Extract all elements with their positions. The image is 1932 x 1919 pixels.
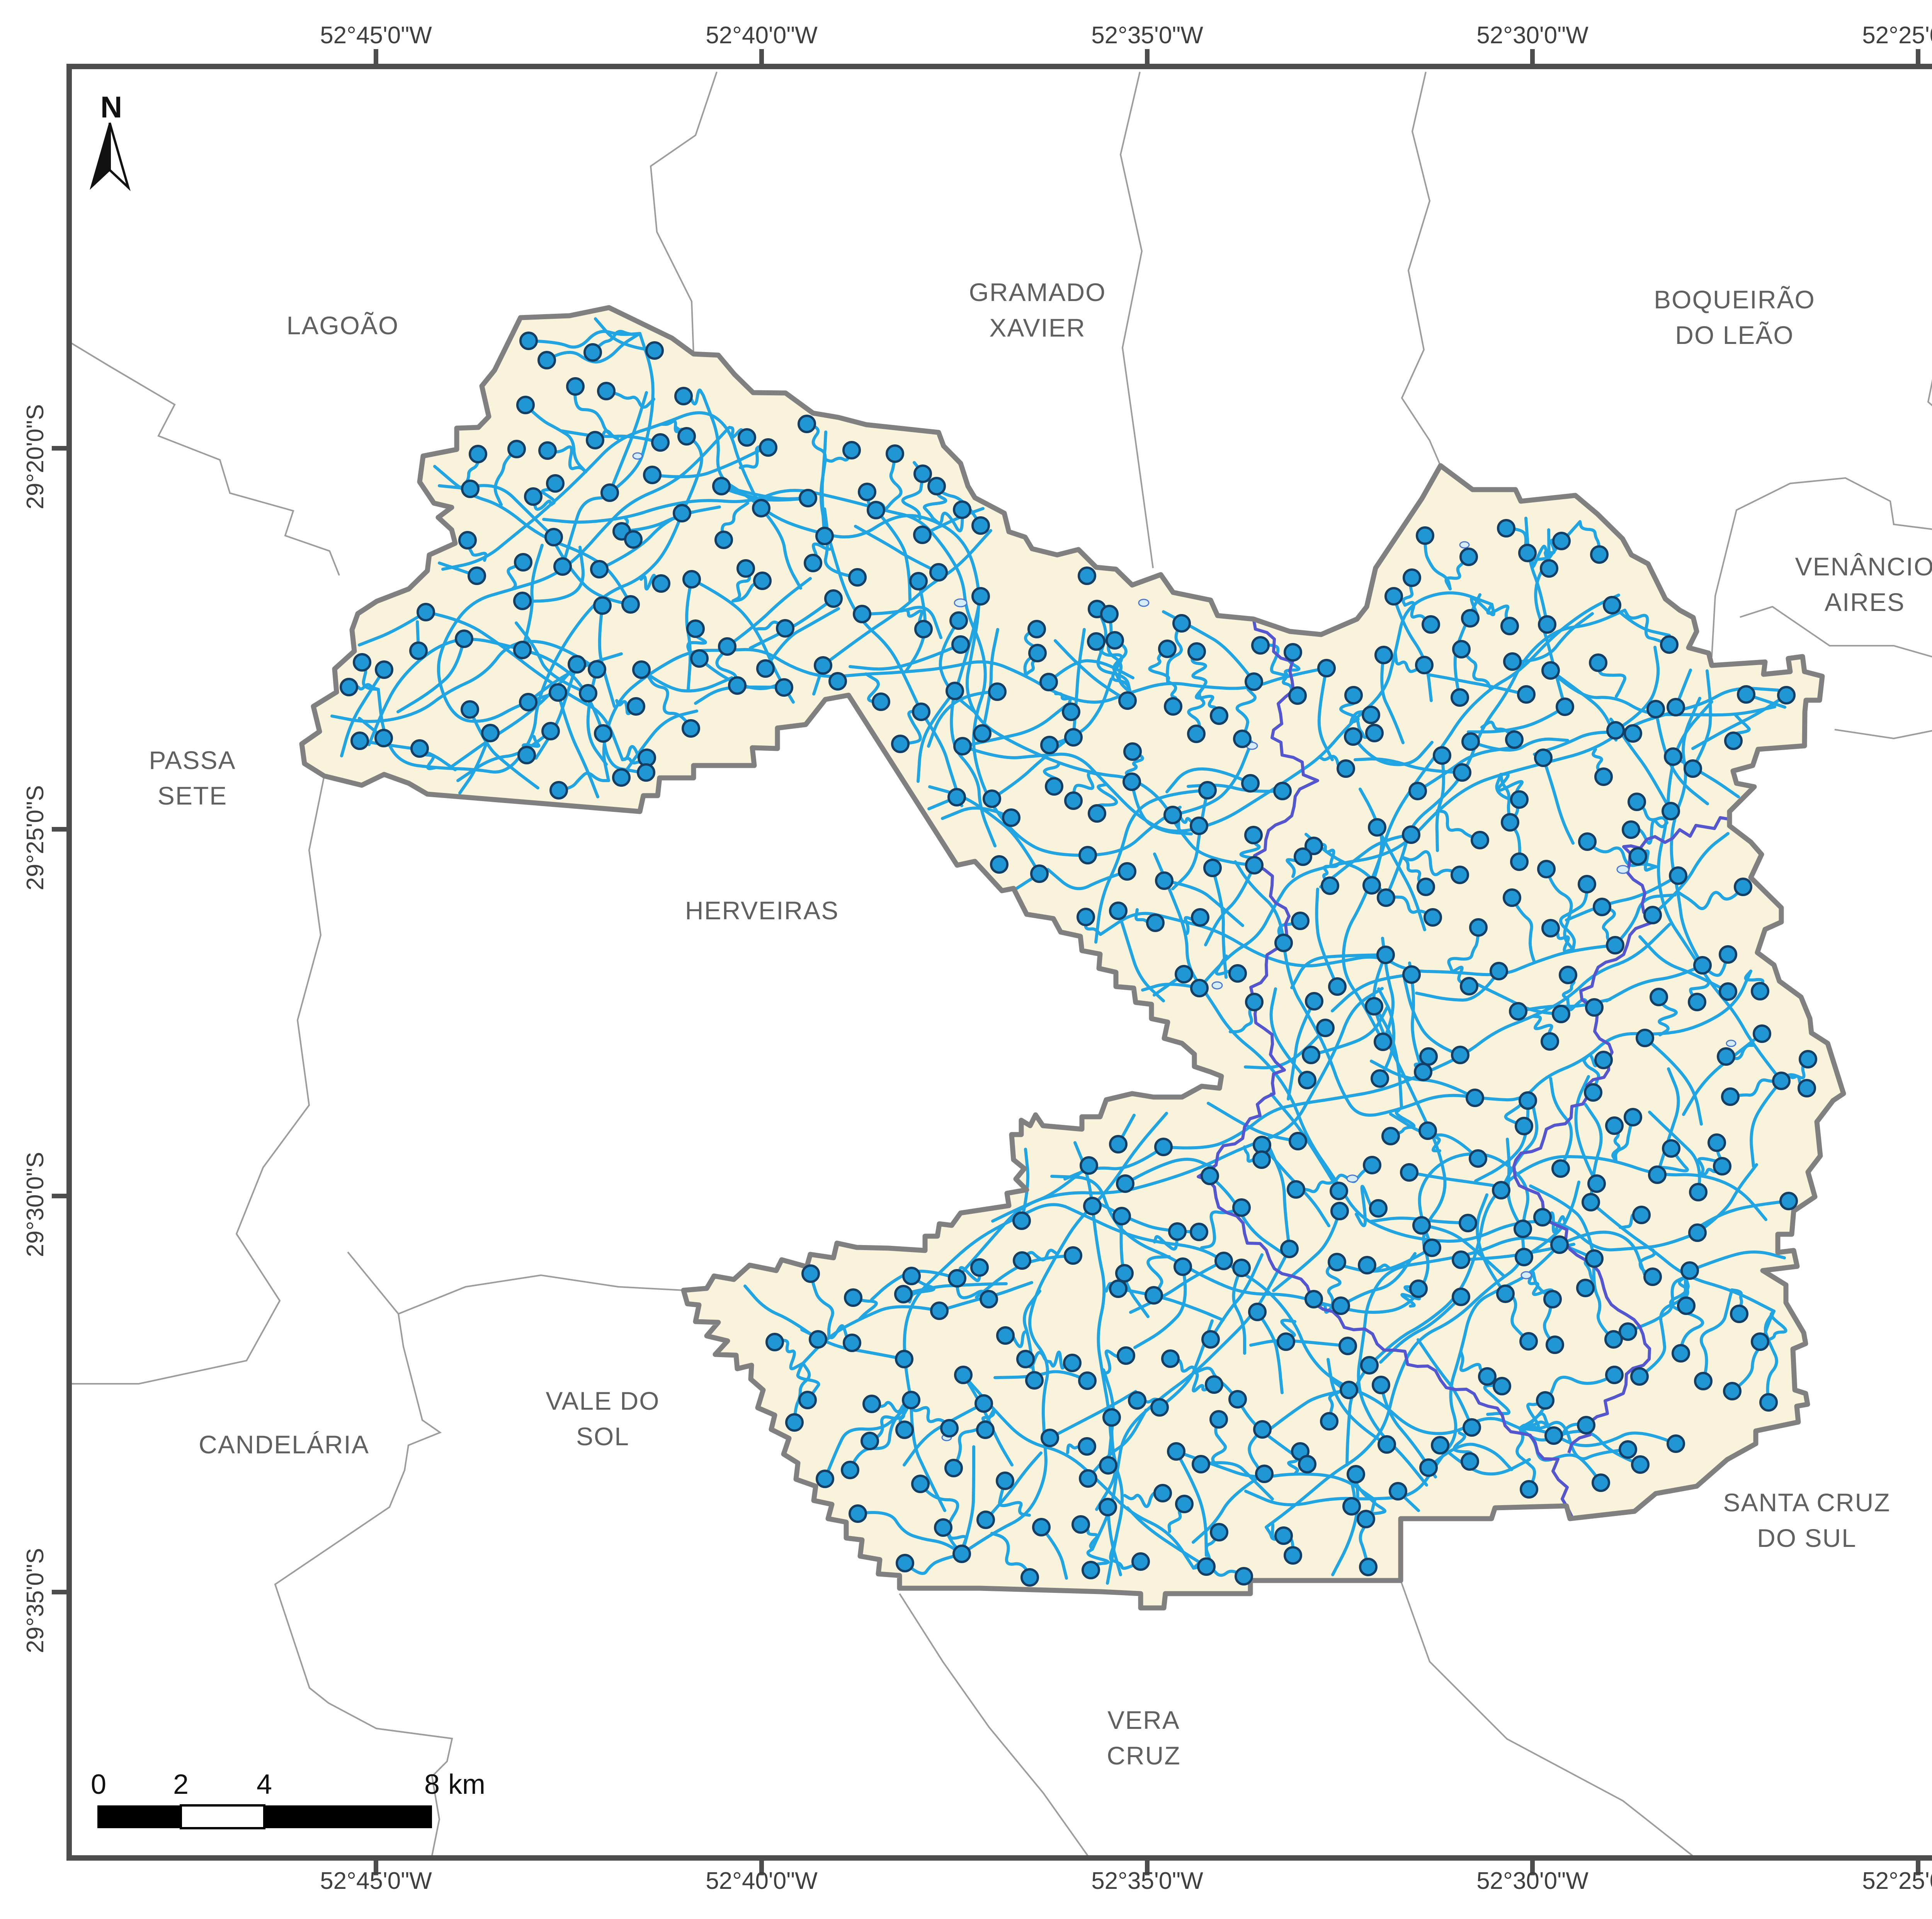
svg-text:SANTA CRUZ: SANTA CRUZ bbox=[1723, 1488, 1890, 1517]
svg-text:km: km bbox=[448, 1769, 485, 1800]
svg-text:8: 8 bbox=[424, 1769, 440, 1800]
svg-text:52°25'0"W: 52°25'0"W bbox=[1862, 1868, 1932, 1894]
svg-text:PASSA: PASSA bbox=[149, 746, 236, 774]
svg-text:52°30'0"W: 52°30'0"W bbox=[1476, 1868, 1588, 1894]
svg-text:29°30'0"S: 29°30'0"S bbox=[22, 1152, 49, 1257]
svg-text:29°25'0"S: 29°25'0"S bbox=[22, 785, 49, 890]
svg-text:52°45'0"W: 52°45'0"W bbox=[320, 22, 432, 49]
svg-text:VALE DO: VALE DO bbox=[546, 1387, 660, 1415]
svg-text:52°35'0"W: 52°35'0"W bbox=[1091, 1868, 1203, 1894]
svg-text:52°40'0"W: 52°40'0"W bbox=[706, 22, 818, 49]
svg-text:VERA: VERA bbox=[1107, 1706, 1180, 1734]
svg-text:GRAMADO: GRAMADO bbox=[969, 278, 1106, 306]
svg-text:52°40'0"W: 52°40'0"W bbox=[706, 1868, 818, 1894]
svg-text:4: 4 bbox=[257, 1769, 272, 1800]
svg-text:XAVIER: XAVIER bbox=[989, 313, 1085, 342]
svg-text:CANDELÁRIA: CANDELÁRIA bbox=[199, 1430, 369, 1459]
svg-text:0: 0 bbox=[91, 1769, 106, 1800]
svg-text:SOL: SOL bbox=[576, 1422, 629, 1451]
svg-text:N: N bbox=[100, 90, 122, 124]
svg-text:HERVEIRAS: HERVEIRAS bbox=[685, 896, 839, 925]
svg-text:LAGOÃO: LAGOÃO bbox=[287, 311, 399, 340]
svg-text:SETE: SETE bbox=[158, 781, 227, 810]
svg-text:CRUZ: CRUZ bbox=[1107, 1741, 1180, 1770]
svg-text:AIRES: AIRES bbox=[1825, 588, 1905, 616]
svg-text:DO SUL: DO SUL bbox=[1757, 1524, 1857, 1552]
svg-text:29°20'0"S: 29°20'0"S bbox=[22, 404, 49, 509]
svg-text:2: 2 bbox=[173, 1769, 189, 1800]
svg-text:52°30'0"W: 52°30'0"W bbox=[1476, 22, 1588, 49]
svg-text:DO LEÃO: DO LEÃO bbox=[1675, 321, 1794, 349]
svg-text:52°45'0"W: 52°45'0"W bbox=[320, 1868, 432, 1894]
svg-text:29°35'0"S: 29°35'0"S bbox=[22, 1548, 49, 1653]
svg-text:VENÂNCIO: VENÂNCIO bbox=[1795, 552, 1932, 581]
svg-text:52°35'0"W: 52°35'0"W bbox=[1091, 22, 1203, 49]
svg-text:BOQUEIRÃO: BOQUEIRÃO bbox=[1654, 285, 1815, 314]
svg-text:52°25'0"W: 52°25'0"W bbox=[1862, 22, 1932, 49]
